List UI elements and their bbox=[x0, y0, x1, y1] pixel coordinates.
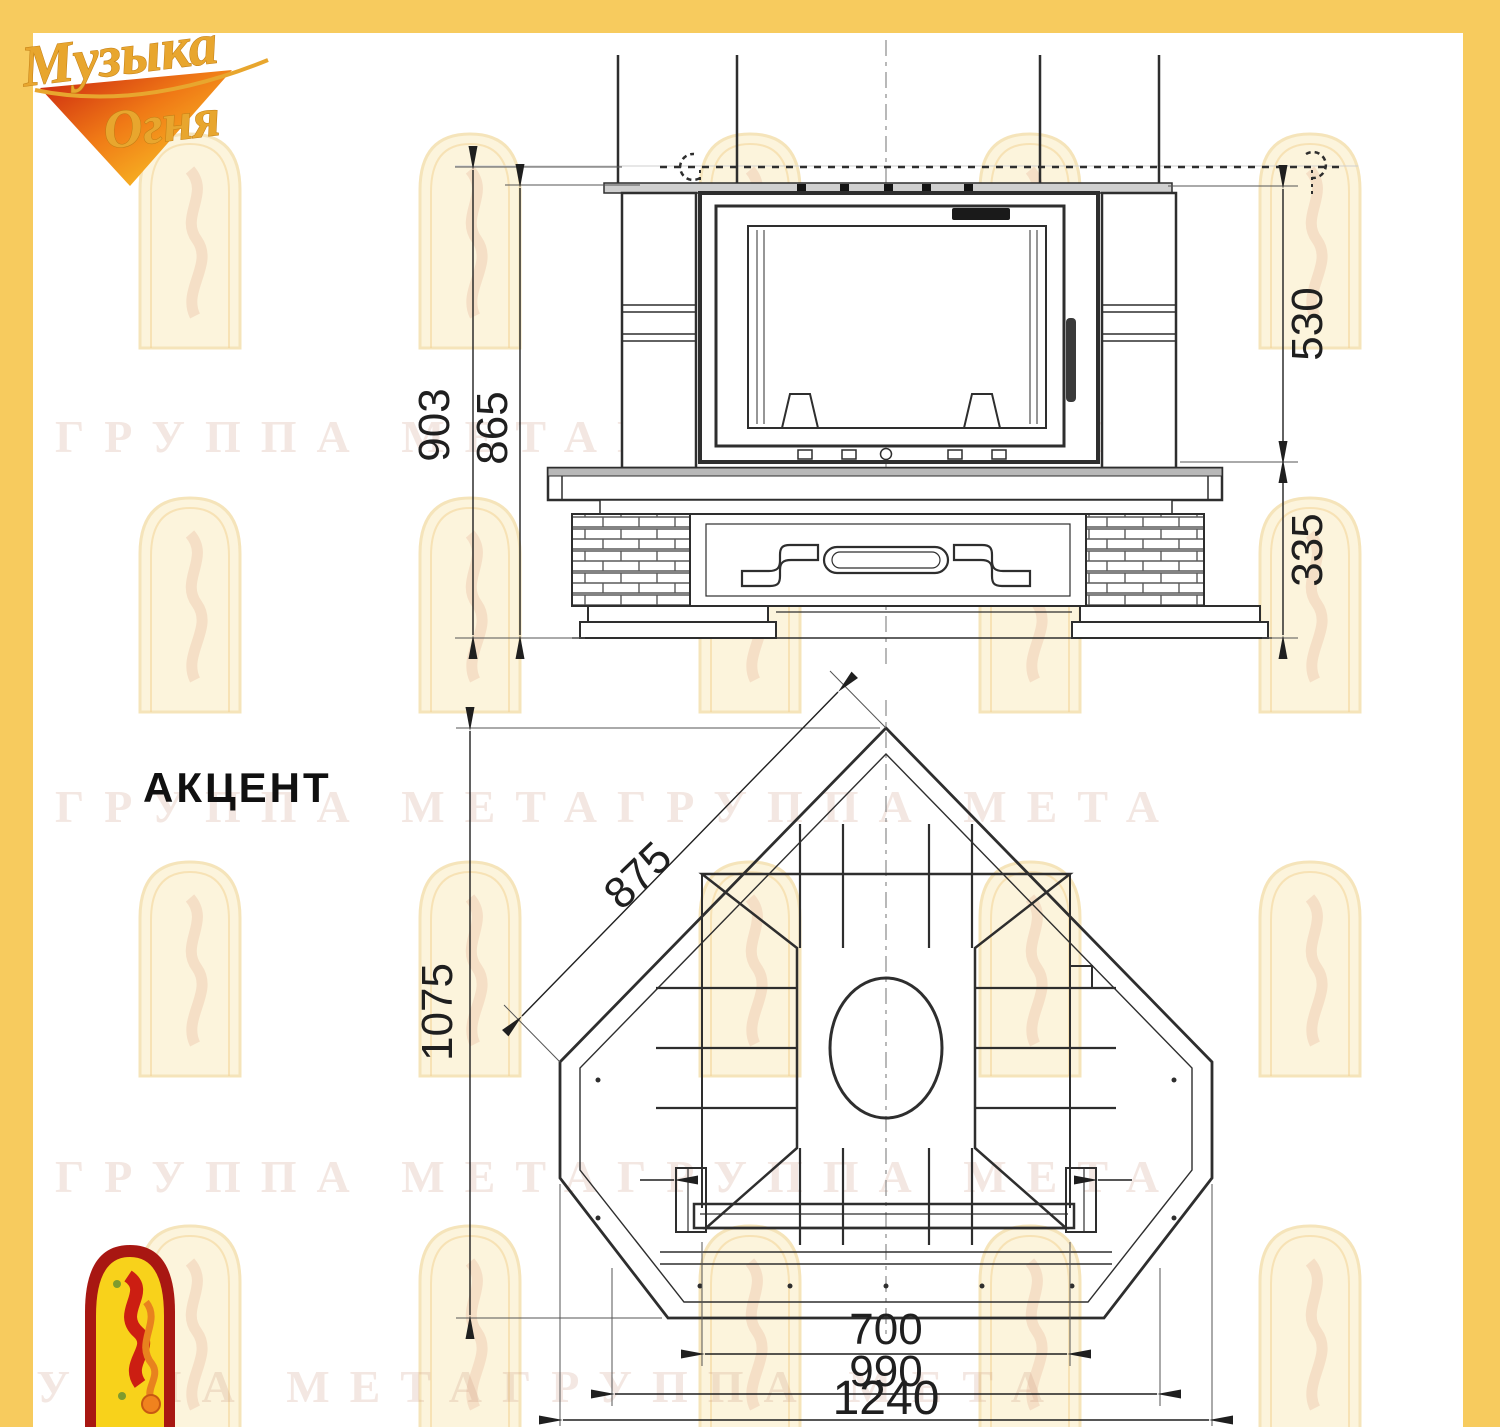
page: ГРУППА МЕТАГРУППА МЕТА ГРУППА МЕТАГРУППА… bbox=[0, 0, 1500, 1427]
right-column bbox=[1102, 193, 1176, 468]
left-column bbox=[622, 193, 696, 468]
dim-depth: 1075 bbox=[413, 963, 462, 1061]
model-title: АКЦЕНТ bbox=[143, 764, 332, 811]
dim-mantel-height: 865 bbox=[468, 391, 517, 464]
hearth-shelf bbox=[548, 468, 1222, 500]
insert-brand-plate bbox=[952, 208, 1010, 220]
door-handle bbox=[1066, 318, 1076, 402]
technical-drawing-sheet: ГРУППА МЕТАГРУППА МЕТА ГРУППА МЕТАГРУППА… bbox=[0, 0, 1500, 1427]
frame-top-band bbox=[0, 0, 1500, 33]
dim-base-section: 335 bbox=[1283, 513, 1332, 586]
frame-left-strip bbox=[0, 0, 33, 1427]
watermark-text-row: ГРУППА МЕТАГРУППА МЕТА bbox=[55, 1151, 1179, 1202]
frieze-panel bbox=[690, 514, 1086, 606]
brick-pier-right bbox=[1086, 514, 1204, 606]
firebox-insert-front bbox=[700, 193, 1098, 462]
brick-pier-left bbox=[572, 514, 690, 606]
frame-right-strip bbox=[1463, 0, 1500, 1427]
emblem-sun-dot bbox=[142, 1395, 160, 1413]
corner-arch-emblem bbox=[85, 1245, 175, 1427]
dim-upper-section: 530 bbox=[1283, 287, 1332, 360]
dim-overall-width: 1240 bbox=[833, 1372, 940, 1425]
dim-overall-height: 903 bbox=[410, 388, 459, 461]
emblem-flame-figure bbox=[128, 1276, 144, 1384]
